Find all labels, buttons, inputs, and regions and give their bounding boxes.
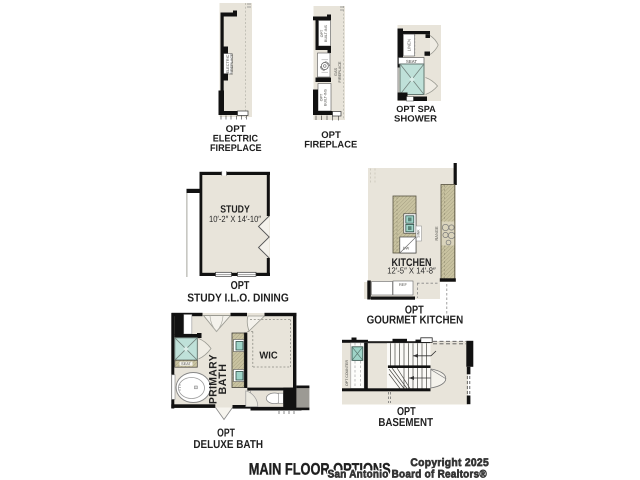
svg-text:WIC: WIC <box>259 351 277 362</box>
svg-text:STUDY I.L.O. DINING: STUDY I.L.O. DINING <box>187 293 289 305</box>
svg-text:FIREPLACE: FIREPLACE <box>210 143 262 154</box>
svg-text:GOURMET KITCHEN: GOURMET KITCHEN <box>367 315 464 327</box>
svg-text:OPT: OPT <box>217 428 235 440</box>
svg-text:FIREPLACE: FIREPLACE <box>304 140 358 151</box>
svg-text:SHOWER: SHOWER <box>394 114 438 124</box>
svg-text:SEAT: SEAT <box>406 59 417 64</box>
svg-text:FIREPLACE: FIREPLACE <box>230 53 234 75</box>
svg-text:BASEMENT: BASEMENT <box>378 417 433 429</box>
svg-text:OPT: OPT <box>231 280 250 292</box>
svg-text:BATH: BATH <box>217 364 229 395</box>
svg-text:OPT SPA: OPT SPA <box>396 104 436 114</box>
svg-text:Copyright 2025: Copyright 2025 <box>410 457 489 469</box>
svg-text:12′-5″ X 14′-8″: 12′-5″ X 14′-8″ <box>387 266 436 276</box>
svg-text:LINEN: LINEN <box>406 39 411 51</box>
svg-text:DW: DW <box>403 247 410 251</box>
svg-text:FIREPLACE: FIREPLACE <box>338 61 342 83</box>
svg-text:San Antonio Board of Realtors®: San Antonio Board of Realtors® <box>328 468 487 480</box>
svg-text:OPT COUNTER: OPT COUNTER <box>345 360 349 386</box>
svg-text:10′-2″ X 14′-10″: 10′-2″ X 14′-10″ <box>209 214 262 224</box>
svg-text:REF: REF <box>399 282 408 287</box>
svg-text:RANGE: RANGE <box>434 226 439 241</box>
svg-text:SEAT: SEAT <box>181 362 191 366</box>
svg-text:BUILT-INS: BUILT-INS <box>324 24 328 42</box>
svg-text:SINK: SINK <box>416 229 420 238</box>
svg-text:BUILT-INS: BUILT-INS <box>324 88 328 106</box>
svg-text:DELUXE BATH: DELUXE BATH <box>193 439 263 451</box>
